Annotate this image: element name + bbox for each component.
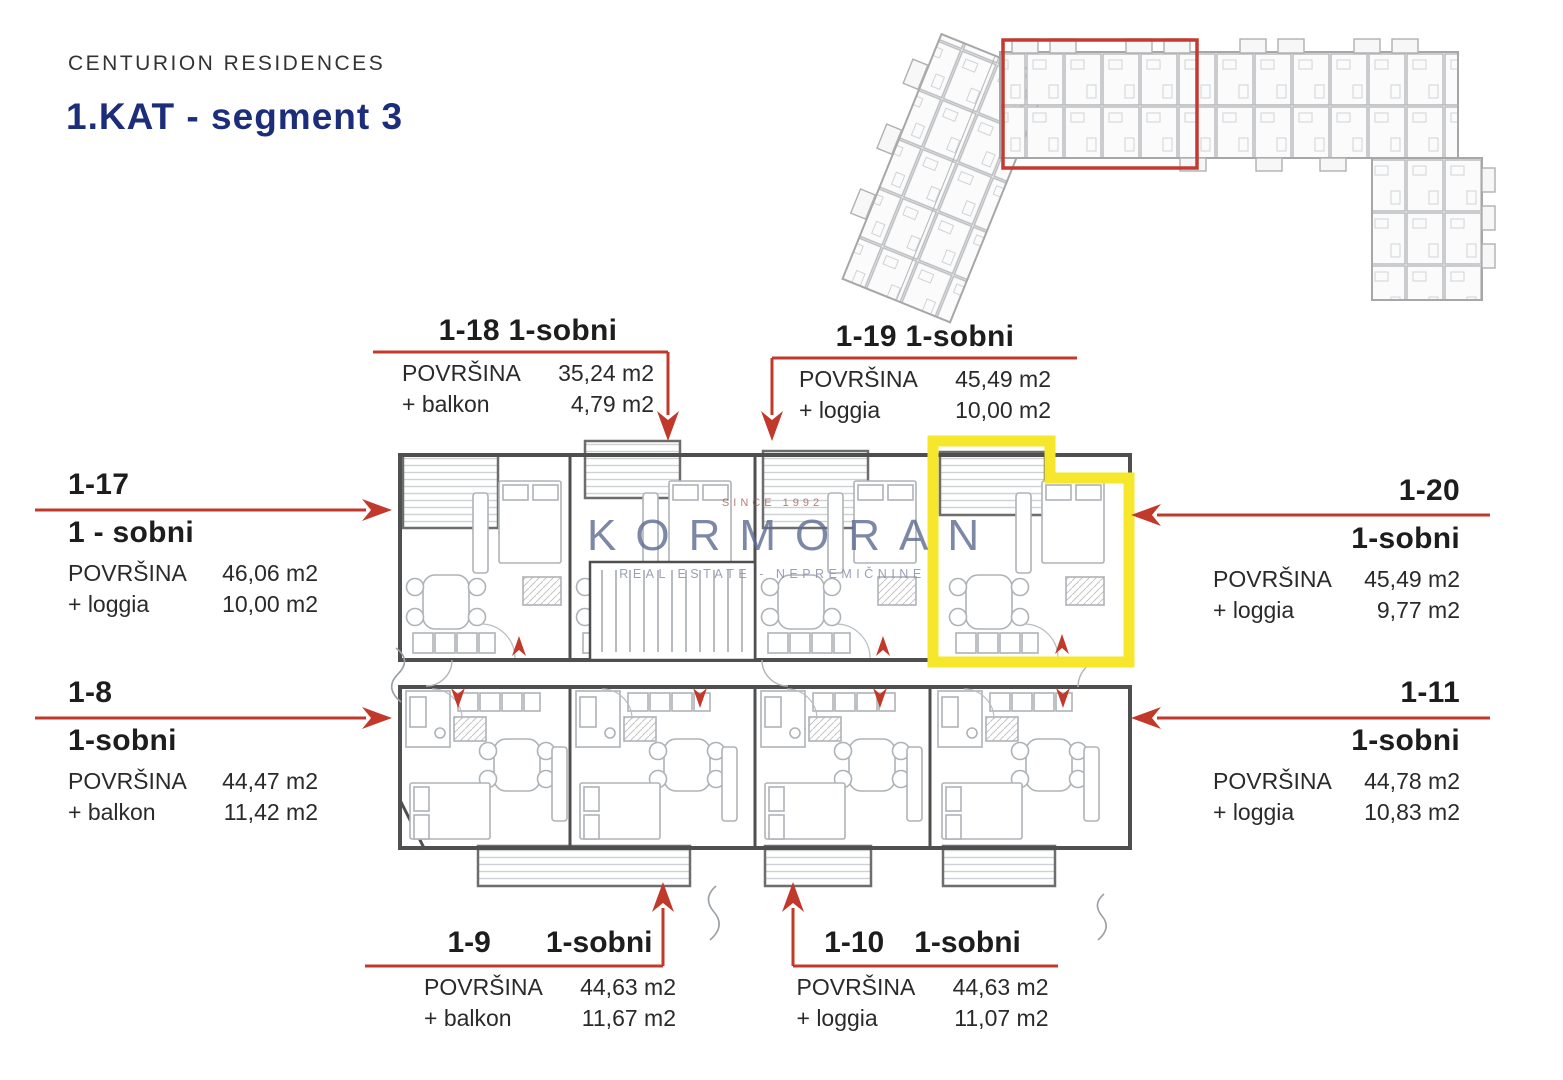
unit-type: 1-sobni: [1213, 724, 1460, 758]
unit-type: 1 - sobni: [68, 516, 318, 550]
area-row: POVRŠINA44,78 m2: [1213, 766, 1460, 797]
area-row: POVRŠINA45,49 m2: [1213, 564, 1460, 595]
overview-map: [827, 28, 1495, 323]
unit-type: 1-sobni: [546, 926, 653, 960]
unit-label-1-8: 1-8 1-sobni POVRŠINA44,47 m2 + balkon11,…: [68, 676, 318, 828]
area-row: POVRŠINA44,63 m2: [797, 972, 1049, 1003]
unit-type: 1-sobni: [68, 724, 318, 758]
unit-title: 1-18 1-sobni: [378, 314, 678, 348]
unit-type: 1-sobni: [906, 320, 1015, 353]
unit-label-1-20: 1-20 1-sobni POVRŠINA45,49 m2 + loggia9,…: [1213, 474, 1460, 626]
unit-title: 1-19 1-sobni: [775, 320, 1075, 354]
unit-label-1-19: 1-19 1-sobni POVRŠINA45,49 m2 + loggia10…: [775, 320, 1075, 426]
unit-type: 1-sobni: [1213, 522, 1460, 556]
extra-row: + loggia10,00 m2: [68, 589, 318, 620]
unit-id: 1-8: [68, 676, 318, 710]
unit-label-1-11: 1-11 1-sobni POVRŠINA44,78 m2 + loggia10…: [1213, 676, 1460, 828]
area-row: POVRŠINA44,47 m2: [68, 766, 318, 797]
floorplan-page: { "header": { "brand": "CENTURION RESIDE…: [0, 0, 1563, 1080]
unit-id: 1-10: [824, 926, 884, 960]
unit-id: 1-11: [1213, 676, 1460, 710]
unit-title: 1-10 1-sobni: [775, 926, 1070, 960]
unit-id: 1-9: [447, 926, 490, 960]
area-row: POVRŠINA45,49 m2: [799, 364, 1051, 395]
unit-title: 1-9 1-sobni: [390, 926, 710, 960]
floor-plan: [392, 441, 1130, 940]
unit-id: 1-20: [1213, 474, 1460, 508]
extra-row: + balkon4,79 m2: [402, 389, 654, 420]
unit-label-1-9: 1-9 1-sobni POVRŠINA44,63 m2 + balkon11,…: [390, 926, 710, 1034]
extra-row: + balkon11,67 m2: [424, 1003, 676, 1034]
unit-label-1-18: 1-18 1-sobni POVRŠINA35,24 m2 + balkon4,…: [378, 314, 678, 420]
unit-type: 1-sobni: [509, 314, 618, 347]
area-row: POVRŠINA35,24 m2: [402, 358, 654, 389]
unit-id: 1-18: [439, 314, 500, 347]
extra-row: + loggia11,07 m2: [797, 1003, 1049, 1034]
area-row: POVRŠINA46,06 m2: [68, 558, 318, 589]
unit-type: 1-sobni: [914, 926, 1021, 960]
unit-id: 1-19: [836, 320, 897, 353]
area-row: POVRŠINA44,63 m2: [424, 972, 676, 1003]
extra-row: + loggia10,00 m2: [799, 395, 1051, 426]
extra-row: + loggia10,83 m2: [1213, 797, 1460, 828]
extra-row: + balkon11,42 m2: [68, 797, 318, 828]
extra-row: + loggia9,77 m2: [1213, 595, 1460, 626]
unit-label-1-17: 1-17 1 - sobni POVRŠINA46,06 m2 + loggia…: [68, 468, 318, 620]
unit-id: 1-17: [68, 468, 318, 502]
unit-label-1-10: 1-10 1-sobni POVRŠINA44,63 m2 + loggia11…: [775, 926, 1070, 1034]
